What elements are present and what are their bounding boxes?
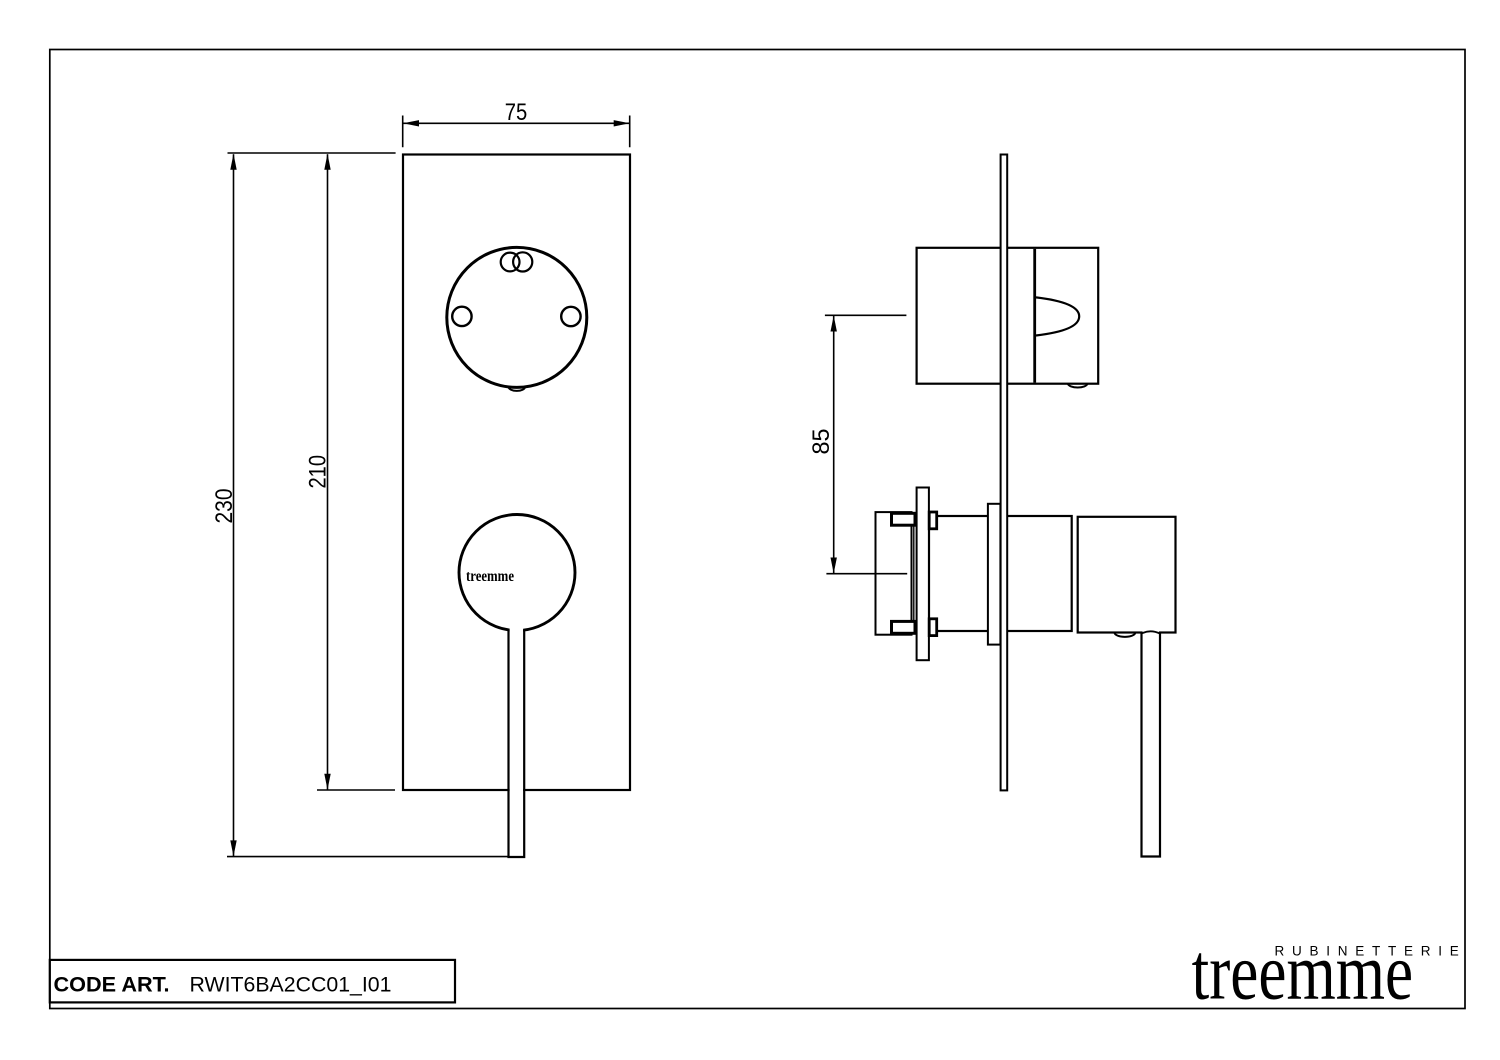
svg-text:CODE ART.: CODE ART. xyxy=(54,972,170,996)
svg-text:treemme: treemme xyxy=(1192,929,1414,1017)
svg-text:210: 210 xyxy=(305,455,332,489)
svg-text:treemme: treemme xyxy=(466,568,514,585)
svg-text:75: 75 xyxy=(505,99,528,126)
svg-text:RWIT6BA2CC01_I01: RWIT6BA2CC01_I01 xyxy=(190,972,392,996)
svg-text:85: 85 xyxy=(808,429,835,455)
svg-text:230: 230 xyxy=(211,489,238,524)
